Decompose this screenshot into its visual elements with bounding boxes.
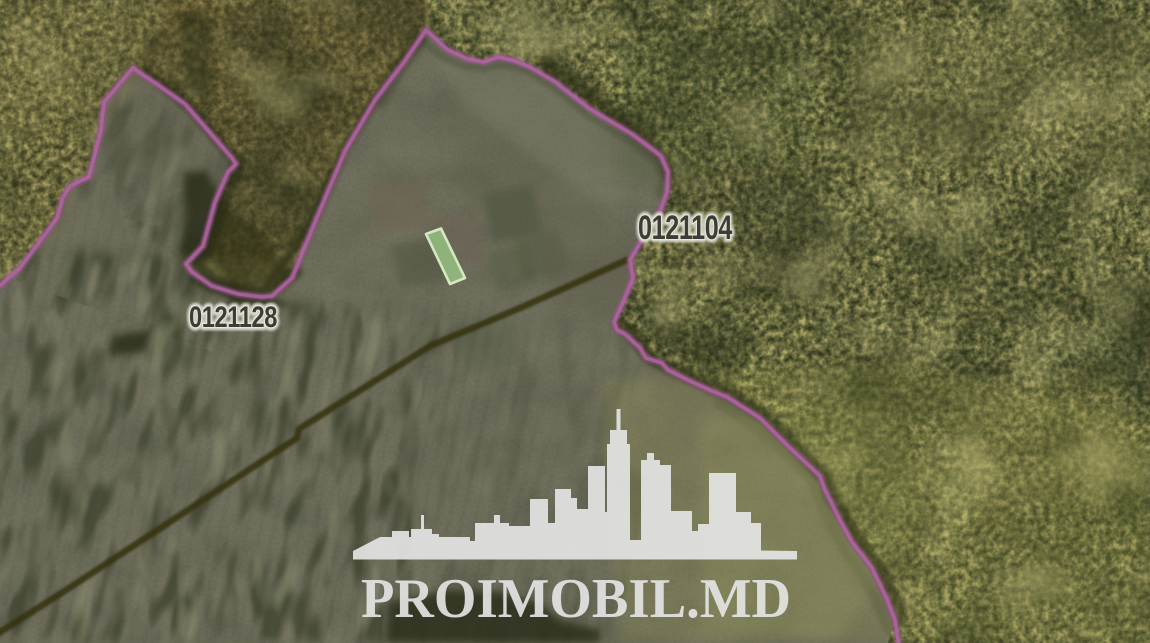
svg-text:0121104: 0121104 [638,209,732,247]
svg-text:PROIMOBIL.MD: PROIMOBIL.MD [361,568,791,630]
svg-text:0121128: 0121128 [189,301,277,334]
